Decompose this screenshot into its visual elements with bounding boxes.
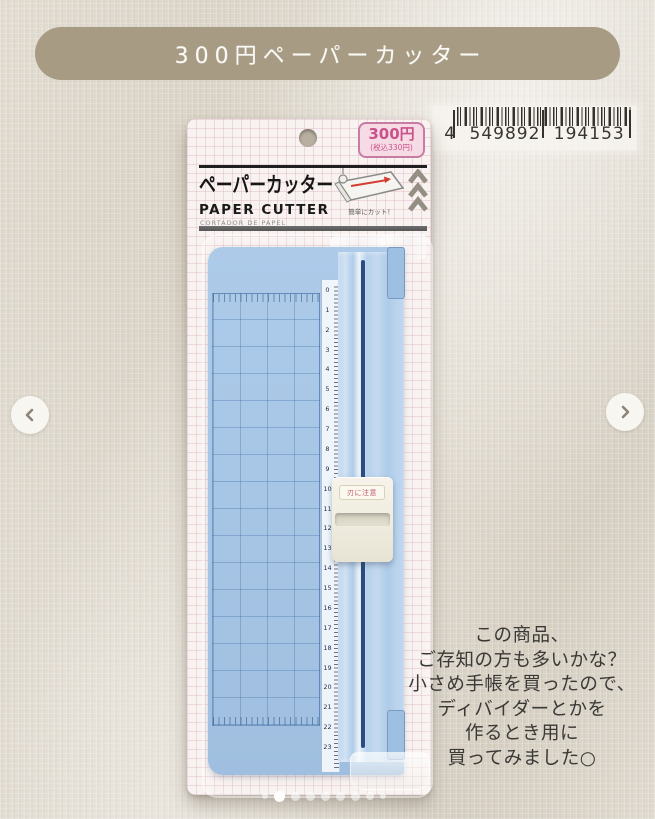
price-tax-note: (税込330円) [360,143,423,152]
barcode: 4 549892 194153 [433,106,636,150]
chevron-left-icon [22,407,38,423]
carousel-dot[interactable] [291,792,300,801]
ruler-number: 8 [322,445,333,453]
ruler-number: 7 [322,425,333,433]
caption-text: この商品、 ご存知の方も多いかな？ 小さめ手帳を買ったので、 ディバイダーとかを… [392,624,652,771]
cutter-illustration-icon [329,167,407,205]
price-badge: 300円 (税込330円) [358,122,425,158]
blade-warning-label: 刃に注意 [339,485,385,500]
caption-line: 買ってみました○ [392,747,652,772]
paper-cutter-body: 01234567891011121314151617181920212223 刃… [208,247,404,775]
carousel-dot[interactable] [366,792,374,800]
carousel-dot[interactable] [321,792,330,801]
photo-stage: 300円ペーパーカッター 4 549892 194153 300円 (税込330… [0,0,655,819]
illustration-caption: 簡単にカット！ [333,206,409,216]
ruler-number: 0 [322,286,333,294]
title-banner: 300円ペーパーカッター [35,27,620,80]
carousel-dots[interactable] [262,789,386,803]
ruler-number: 23 [322,743,333,751]
barcode-digits: 4 549892 194153 [433,124,636,144]
carousel-dot[interactable] [380,793,386,799]
carousel-dot[interactable] [262,793,268,799]
caption-line: ご存知の方も多いかな？ [392,649,652,674]
ruler-number: 6 [322,405,333,413]
ruler-number: 16 [322,604,333,612]
banner-label: 300円ペーパーカッター [175,38,487,70]
ruler-number: 22 [322,723,333,731]
prev-slide-button[interactable] [11,396,49,434]
ruler-number: 18 [322,644,333,652]
product-title-en: PAPER CUTTER [199,202,330,218]
caption-line: 作るとき用に [392,722,652,747]
caption-line: ディバイダーとかを [392,698,652,723]
price-label: 300円 [360,126,423,143]
carousel-dot[interactable] [336,792,345,801]
product-title-jp: ペーパーカッター [199,169,333,199]
chevron-right-icon [617,404,633,420]
ruler-number: 4 [322,365,333,373]
ruler-number: 17 [322,624,333,632]
carousel-dot[interactable] [274,791,285,802]
header-bar [199,226,427,231]
caption-line: この商品、 [392,624,652,649]
hang-hole [299,129,317,147]
ruler-number: 1 [322,306,333,314]
ruler-number: 15 [322,584,333,592]
ruler-number: 20 [322,683,333,691]
ruler-number: 2 [322,326,333,334]
triple-chevron-icon [408,169,428,215]
slider-groove [335,513,390,526]
caption-line: 小さめ手帳を買ったので、 [392,673,652,698]
rail-endcap-top [387,247,405,299]
next-slide-button[interactable] [606,393,644,431]
ruler-number: 3 [322,346,333,354]
ruler-number: 14 [322,564,333,572]
ruler-number: 5 [322,385,333,393]
carousel-dot[interactable] [306,792,315,801]
blade-slider: 刃に注意 [332,477,393,562]
ruler-number: 21 [322,703,333,711]
ruler-number: 9 [322,465,333,473]
carousel-dot[interactable] [351,792,360,801]
ruler-number: 19 [322,664,333,672]
cutting-grid [212,293,320,726]
